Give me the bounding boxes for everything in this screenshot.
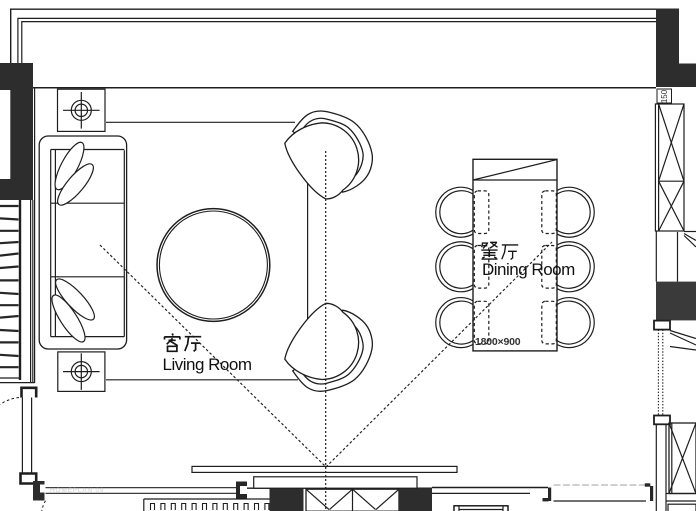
svg-text:150: 150 <box>660 89 669 103</box>
